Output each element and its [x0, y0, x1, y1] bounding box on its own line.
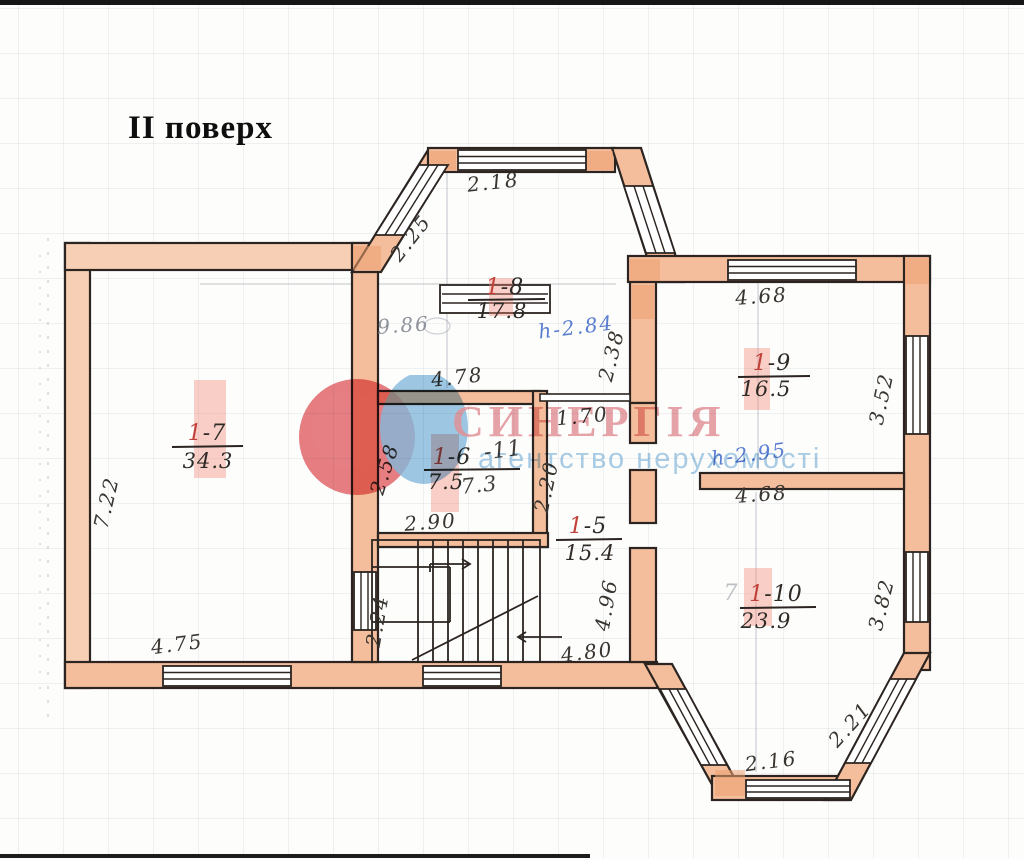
svg-text:1-9: 1-9 [753, 351, 791, 376]
room-label-1-6: 1-6 -11 7.5 7.3 [424, 436, 524, 499]
window-right-382 [906, 552, 928, 622]
window-bay-top [458, 150, 586, 170]
room-number-prefix: 1 [188, 421, 203, 446]
room-number-prefix: 1 [433, 445, 448, 470]
wall-divider-right-b [630, 403, 656, 443]
room-area: 34.3 [183, 449, 234, 473]
dim-bottom-left: 4.75 [149, 629, 205, 659]
floorplan-drawing: 1-7 34.3 1-8 17.8 1-6 -11 7.5 7.3 1-5 15… [0, 0, 1024, 859]
svg-text:1-6: 1-6 [433, 445, 471, 470]
room-number-suffix: -6 [448, 445, 471, 470]
dim-r9-right: 3.52 [864, 370, 898, 426]
room-label-1-10: 7 1-10 23.9 [724, 581, 817, 633]
stair-direction-line [412, 596, 538, 660]
wall-divider-right-d [630, 548, 656, 662]
staircase [372, 540, 562, 662]
room-area: 7.5 [428, 470, 464, 494]
room-number-pencil-ghost: 7 [724, 581, 739, 606]
room-number-prefix: 1 [753, 351, 768, 376]
window-top-right [728, 260, 856, 280]
room-label-1-5: 1-5 15.4 [556, 514, 622, 565]
room-area: 23.9 [740, 609, 792, 633]
room-number-overlay: -11 [483, 436, 524, 465]
window-bottom-475 [163, 666, 291, 686]
svg-text:1-5: 1-5 [569, 514, 607, 539]
dim-r10-height-note: h-2.95 [710, 438, 789, 471]
scanned-floorplan-page: II поверх [0, 0, 1024, 859]
dim-hall-width: 9.86 [376, 311, 430, 339]
room-area-overlay: 7.3 [460, 471, 499, 499]
wall-corner-accent [586, 151, 613, 170]
wall-corner-accent [715, 770, 745, 796]
window-right-352 [906, 336, 928, 434]
wall-corner-accent [630, 259, 660, 281]
dim-r9-top: 4.68 [733, 282, 788, 310]
dim-stair-right: 4.96 [590, 577, 623, 634]
window-bay2-left-diagonal [660, 689, 727, 765]
room-label-1-7: 1-7 34.3 [172, 421, 243, 473]
wall-top-left [65, 243, 380, 270]
room-label-1-8: 1-8 17.8 [468, 275, 545, 323]
window-bottom-under-stairs [423, 666, 501, 686]
room-number-suffix: -5 [584, 514, 607, 539]
dim-corridor-top: 1.70 [555, 402, 609, 430]
dim-hall-bottom: 4.78 [429, 362, 485, 391]
wall-corner-accent [353, 246, 381, 270]
window-bay-right-diagonal [624, 186, 675, 253]
dim-r10-top: 4.68 [733, 480, 788, 508]
wall-divider-right-c [630, 470, 656, 523]
wall-between-r9-r10 [700, 473, 904, 489]
dim-r10-right: 3.82 [863, 576, 899, 633]
room-number-suffix: -8 [501, 275, 524, 300]
wall-hall-room6 [378, 391, 540, 404]
window-bay2-bottom [746, 780, 850, 798]
svg-text:1-8: 1-8 [486, 275, 524, 300]
svg-text:1-10: 1-10 [749, 582, 802, 607]
dim-left-wall: 7.22 [89, 474, 124, 531]
room-number-suffix: -7 [203, 421, 226, 446]
wall-left [65, 243, 90, 688]
wall-corridor-thin [540, 394, 630, 401]
room-area: 17.8 [477, 299, 528, 323]
svg-text:1-7: 1-7 [188, 421, 226, 446]
room-number-prefix: 1 [569, 514, 584, 539]
room-area: 15.4 [565, 541, 616, 565]
dim-bay-top: 2.18 [465, 167, 521, 196]
wall-corner-accent [905, 258, 929, 284]
highlight-bands [194, 278, 772, 626]
room-area: 16.5 [741, 377, 792, 401]
room-number-suffix: -10 [764, 582, 802, 607]
dim-r6-width: 2.90 [402, 508, 457, 536]
room-number-prefix: 1 [749, 582, 764, 607]
wall-corner-accent [632, 285, 654, 319]
room-number-prefix: 1 [486, 275, 501, 300]
room-number-suffix: -9 [768, 351, 791, 376]
dim-bay2-bottom: 2.16 [743, 746, 799, 776]
